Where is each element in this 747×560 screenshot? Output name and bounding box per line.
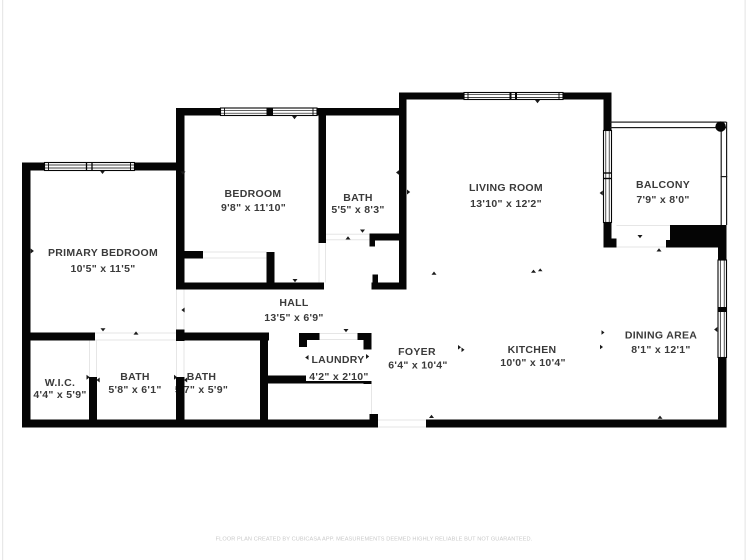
svg-text:7'9" x 8'0": 7'9" x 8'0" bbox=[636, 194, 689, 206]
svg-text:6'4" x 10'4": 6'4" x 10'4" bbox=[388, 360, 447, 372]
svg-text:8'1" x 12'1": 8'1" x 12'1" bbox=[631, 344, 690, 356]
svg-text:5'5" x 8'3": 5'5" x 8'3" bbox=[331, 204, 384, 216]
svg-text:13'5" x 6'9": 13'5" x 6'9" bbox=[264, 312, 323, 324]
svg-text:LAUNDRY: LAUNDRY bbox=[311, 354, 364, 366]
svg-text:FLOOR PLAN CREATED BY CUBICASA: FLOOR PLAN CREATED BY CUBICASA APP. MEAS… bbox=[216, 537, 533, 543]
svg-text:4'2" x 2'10": 4'2" x 2'10" bbox=[309, 371, 368, 383]
svg-text:BEDROOM: BEDROOM bbox=[225, 188, 282, 200]
svg-text:10'5" x 11'5": 10'5" x 11'5" bbox=[71, 263, 136, 275]
svg-text:BALCONY: BALCONY bbox=[636, 179, 690, 191]
svg-text:5'8" x 6'1": 5'8" x 6'1" bbox=[108, 384, 161, 396]
svg-text:PRIMARY BEDROOM: PRIMARY BEDROOM bbox=[48, 247, 158, 259]
svg-text:BATH: BATH bbox=[343, 192, 373, 204]
svg-text:BATH: BATH bbox=[187, 371, 217, 383]
svg-text:W.I.C.: W.I.C. bbox=[45, 377, 75, 389]
svg-text:LIVING ROOM: LIVING ROOM bbox=[469, 182, 543, 194]
svg-text:DINING AREA: DINING AREA bbox=[625, 330, 697, 342]
svg-text:13'10" x 12'2": 13'10" x 12'2" bbox=[470, 198, 542, 210]
svg-text:KITCHEN: KITCHEN bbox=[508, 344, 557, 356]
svg-text:HALL: HALL bbox=[279, 297, 308, 309]
svg-text:9'8" x 11'10": 9'8" x 11'10" bbox=[221, 202, 286, 214]
svg-text:FOYER: FOYER bbox=[398, 346, 436, 358]
svg-text:10'0" x 10'4": 10'0" x 10'4" bbox=[500, 357, 566, 369]
svg-text:BATH: BATH bbox=[120, 371, 150, 383]
svg-text:4'4" x 5'9": 4'4" x 5'9" bbox=[33, 389, 86, 401]
